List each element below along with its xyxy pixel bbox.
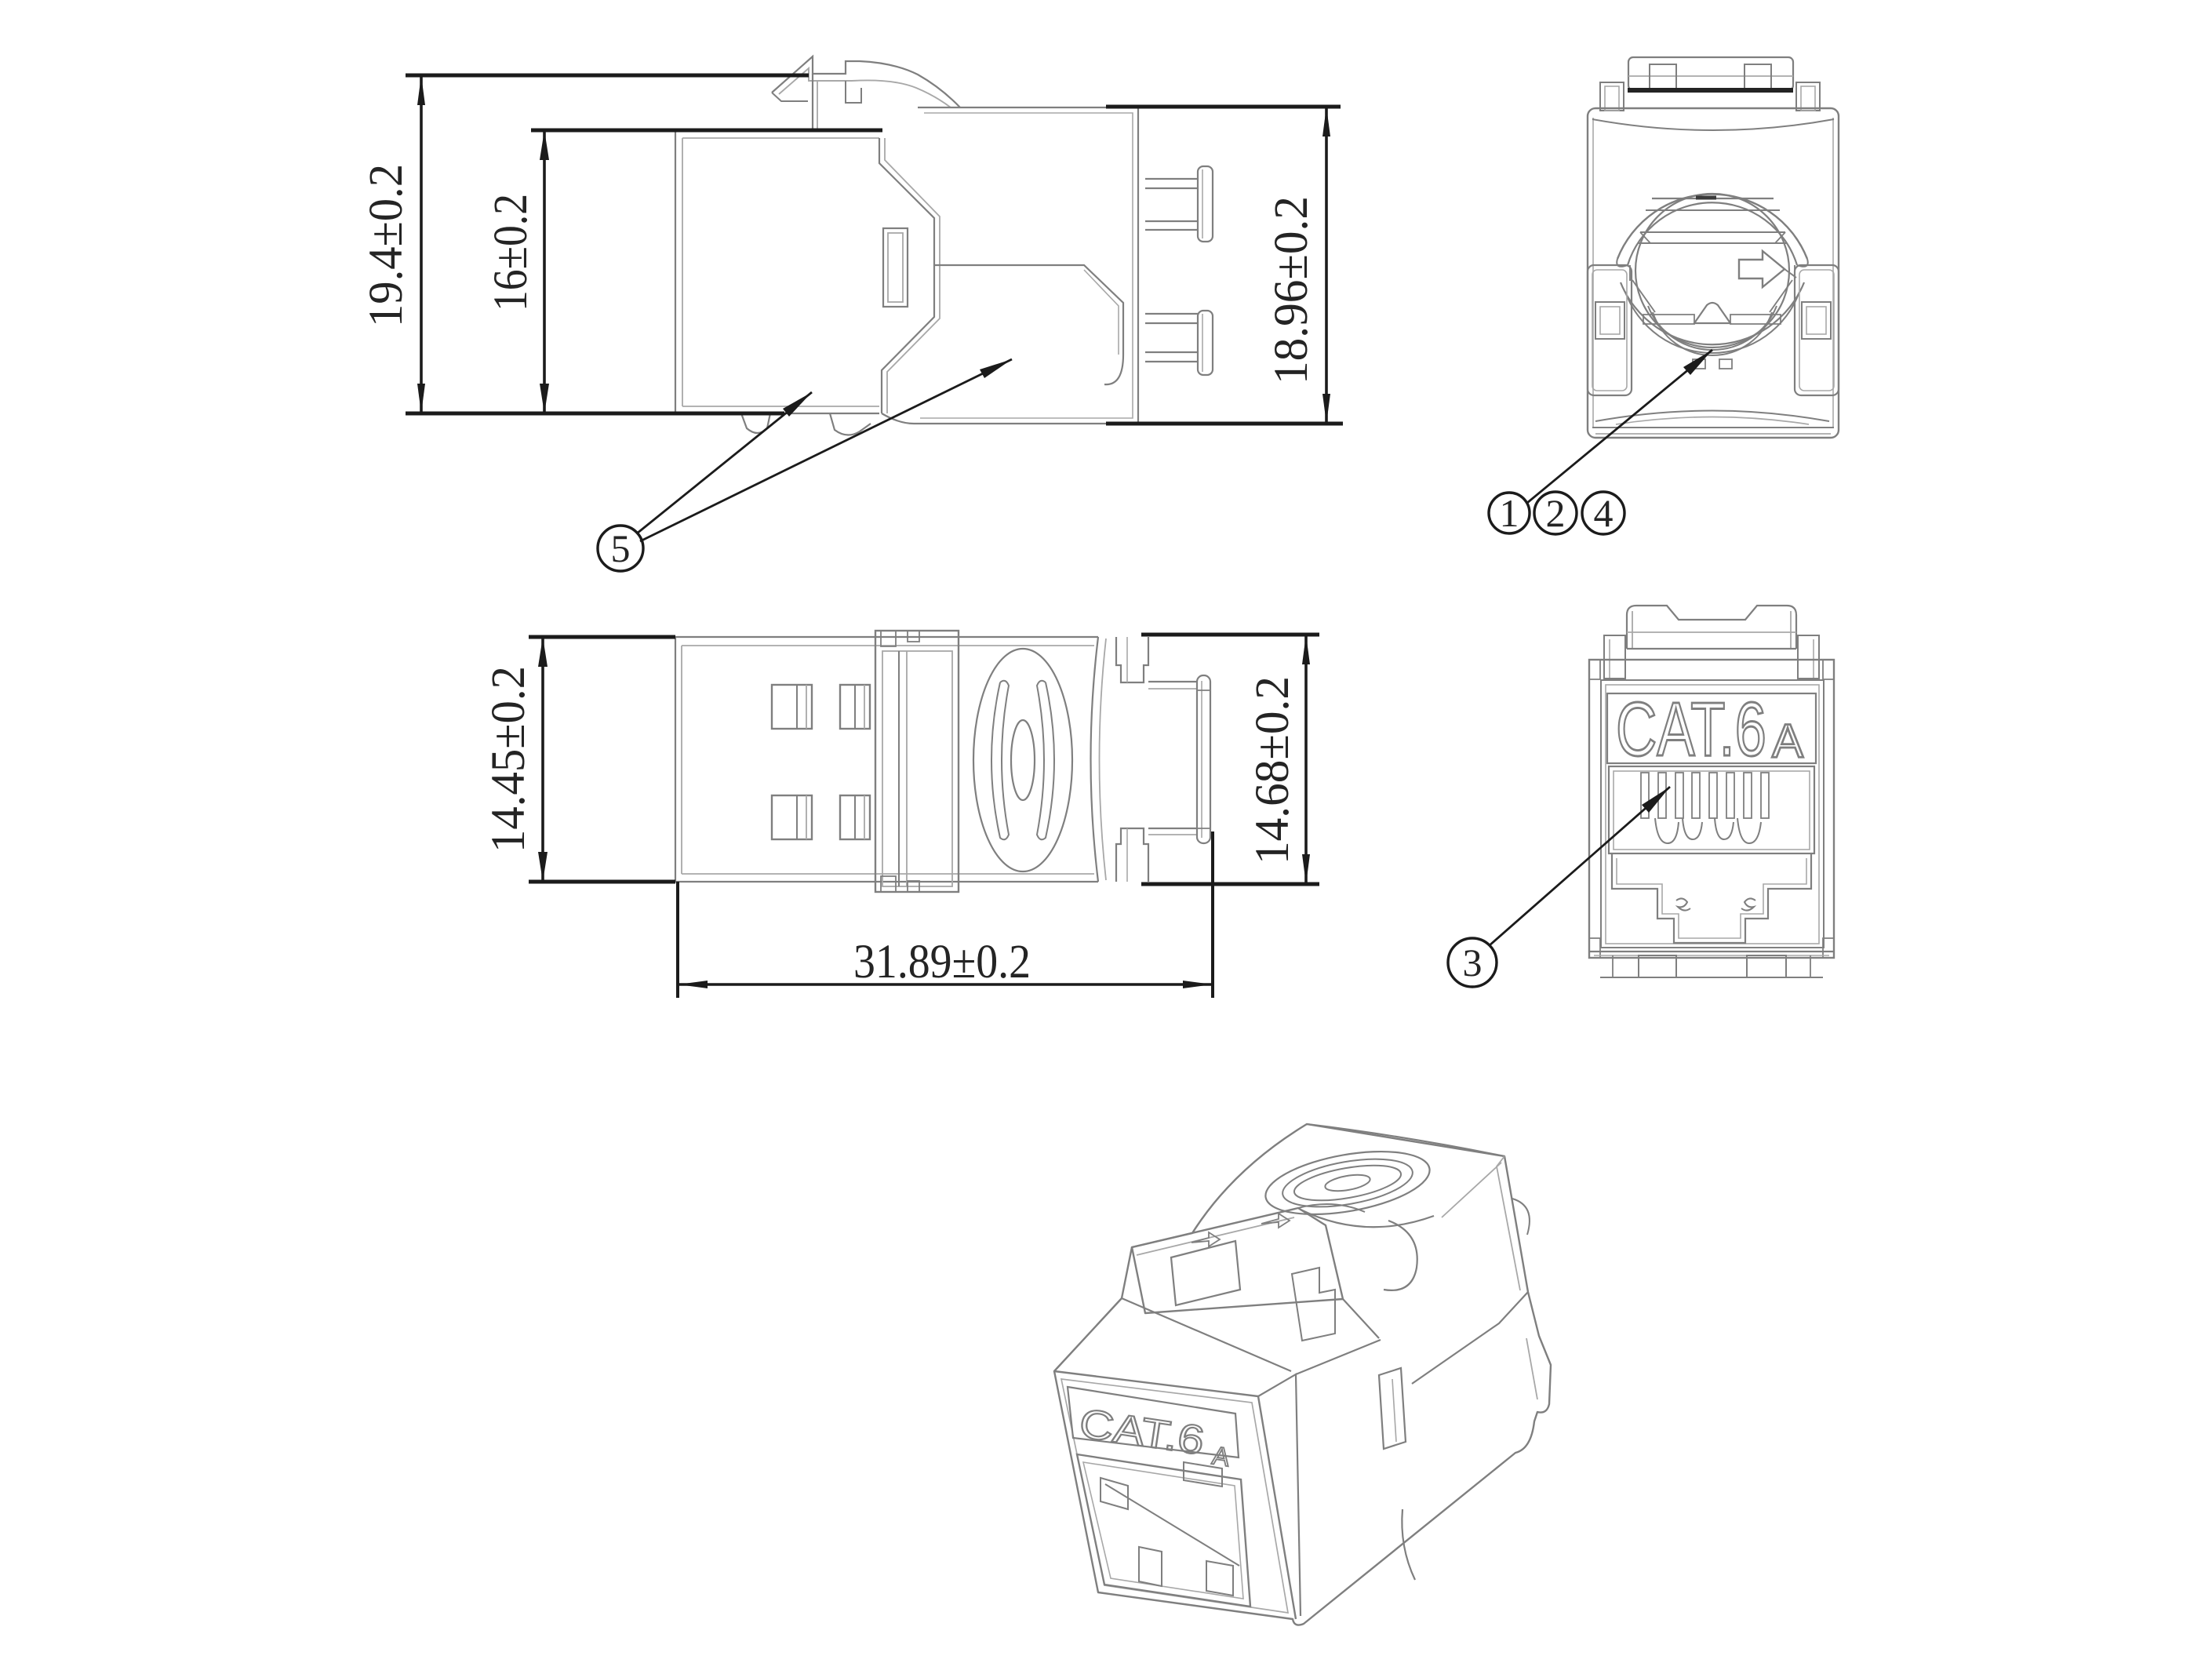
svg-text:CAT.6: CAT.6 <box>1616 686 1766 772</box>
svg-text:14.45±0.2: 14.45±0.2 <box>482 666 535 853</box>
svg-text:1: 1 <box>1500 491 1519 535</box>
svg-text:2: 2 <box>1546 491 1566 535</box>
svg-text:5: 5 <box>611 526 631 570</box>
svg-text:A: A <box>1772 715 1803 767</box>
svg-text:18.96±0.2: 18.96±0.2 <box>1265 196 1318 384</box>
svg-text:4: 4 <box>1594 491 1614 535</box>
svg-text:31.89±0.2: 31.89±0.2 <box>853 936 1031 988</box>
svg-text:16±0.2: 16±0.2 <box>485 194 537 311</box>
svg-text:14.68±0.2: 14.68±0.2 <box>1246 676 1299 864</box>
svg-text:3: 3 <box>1463 941 1483 984</box>
svg-text:19.4±0.2: 19.4±0.2 <box>360 164 413 327</box>
